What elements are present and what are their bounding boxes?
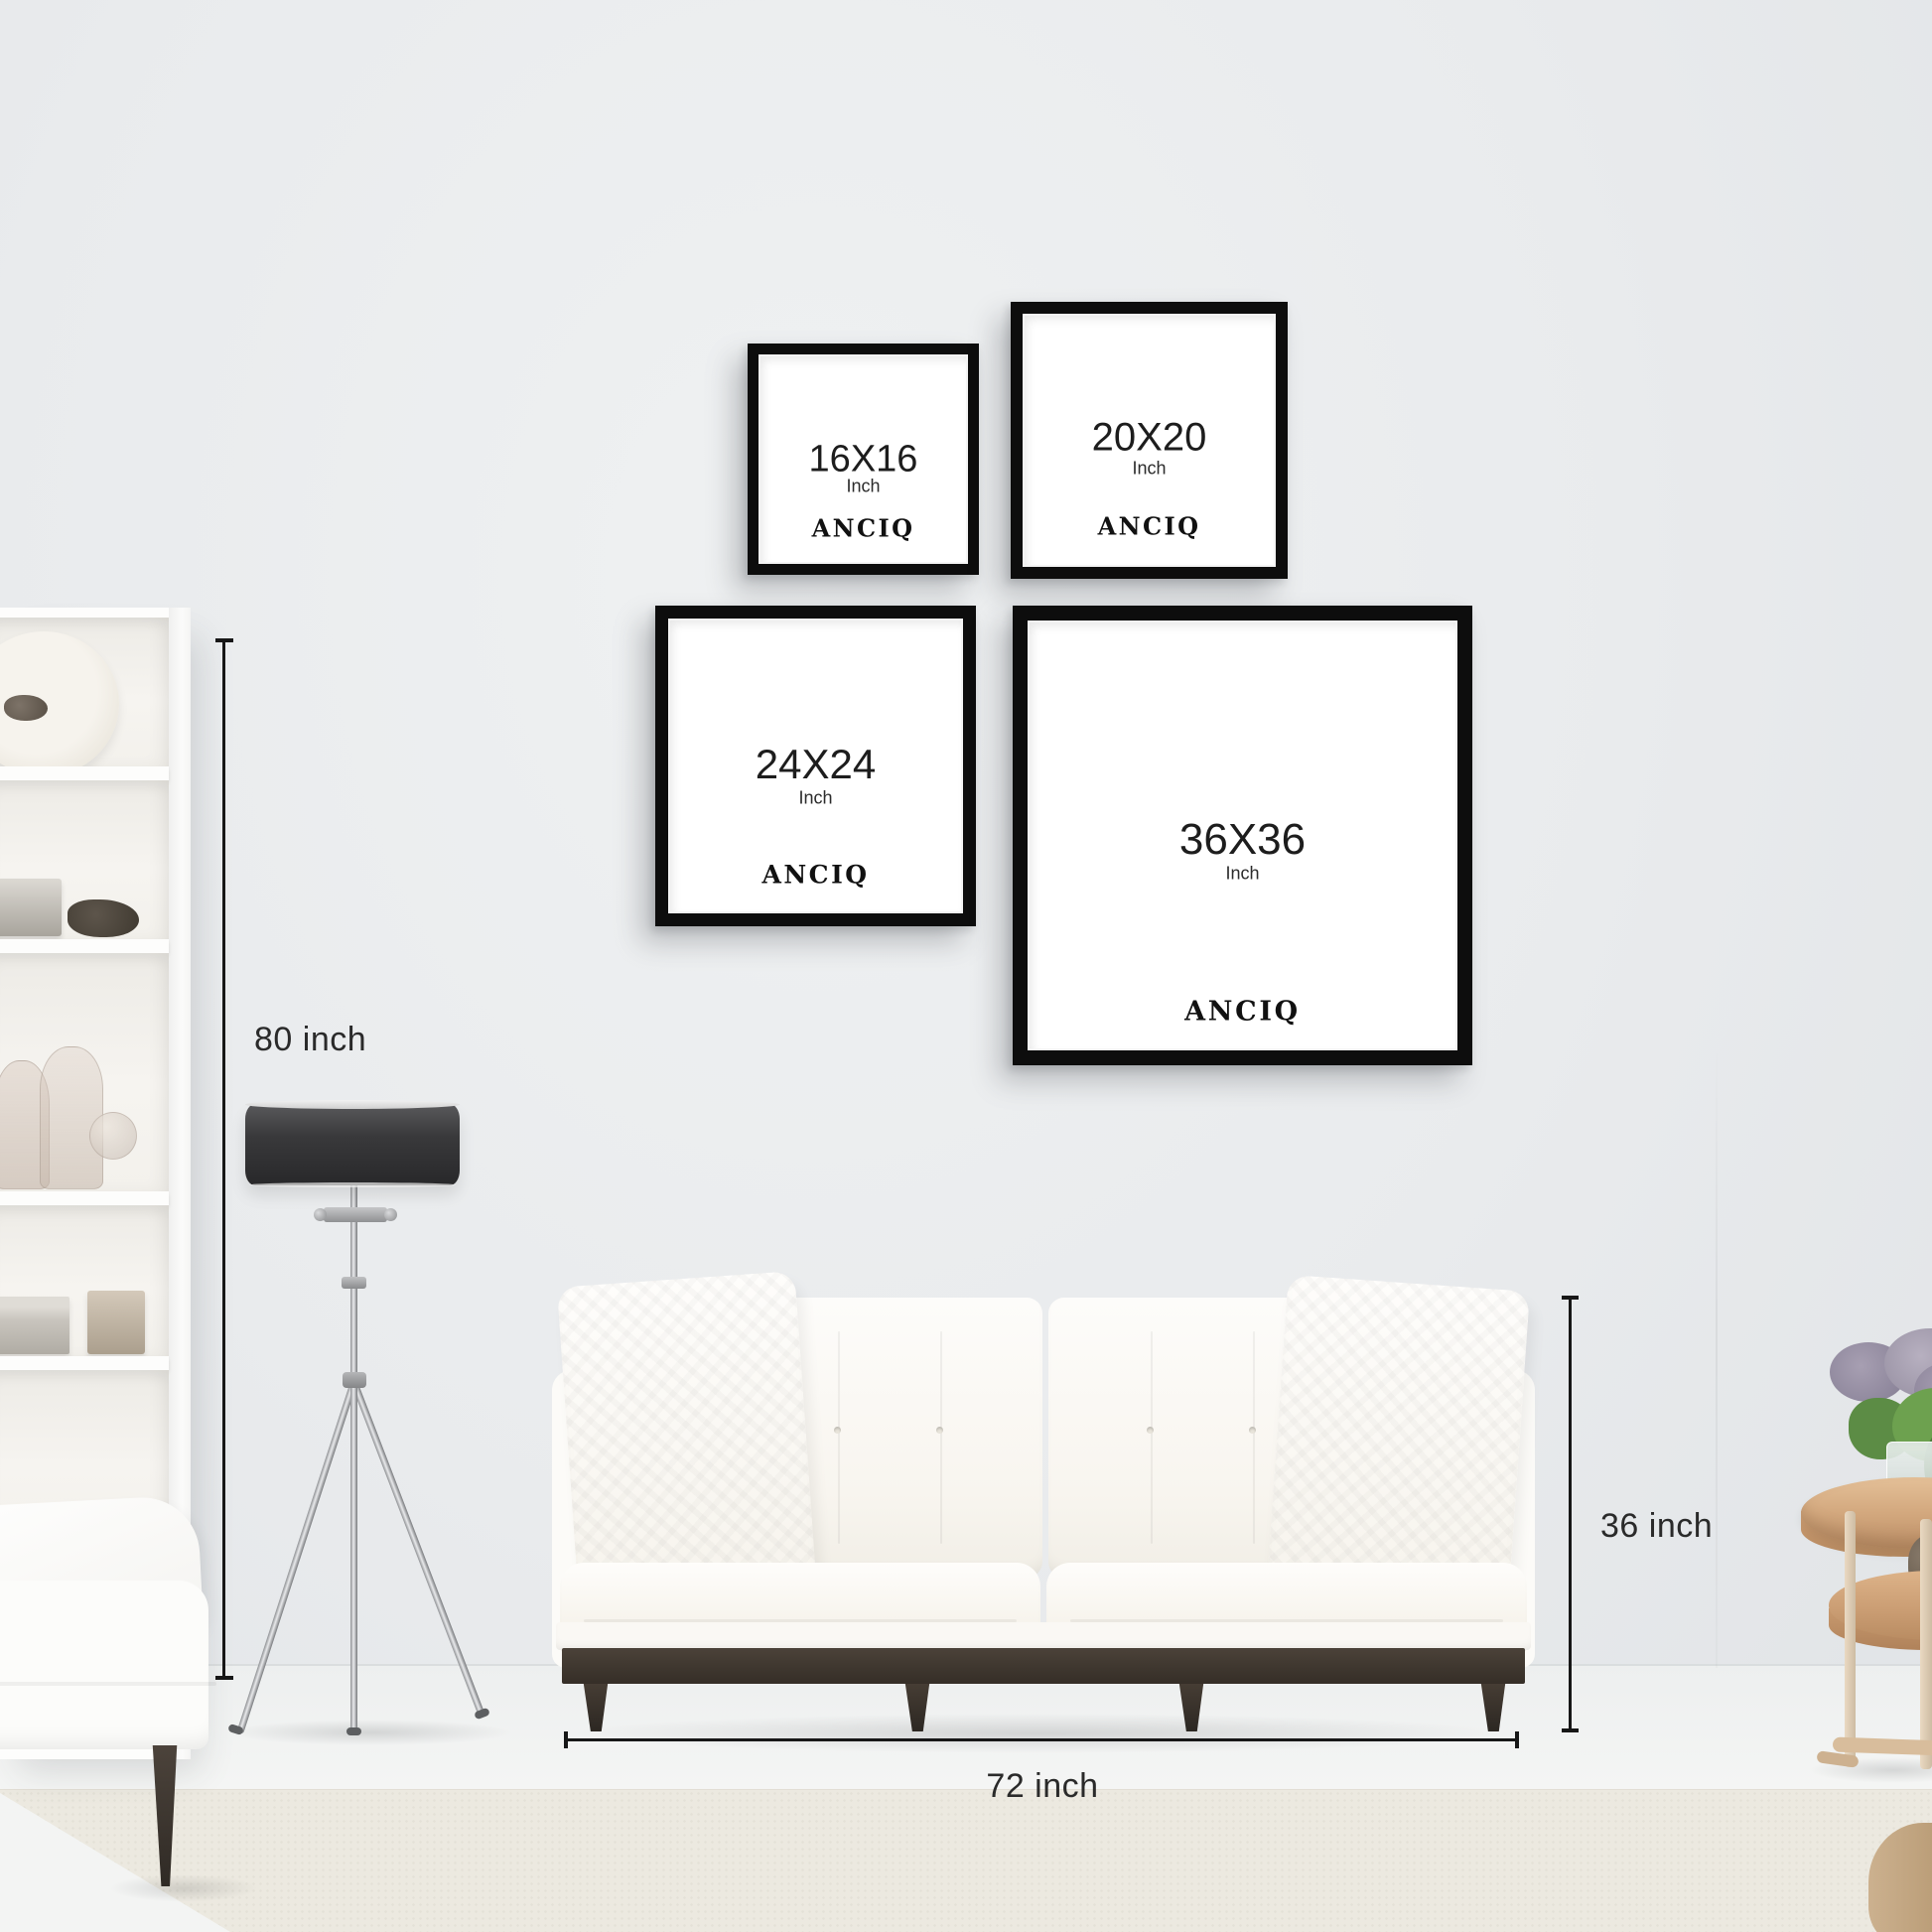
frame-unit-label: Inch <box>759 476 968 496</box>
throw-pillow-left <box>557 1271 817 1612</box>
sofa-wood-rail <box>562 1648 1525 1684</box>
brand-logo: ANCIQ <box>668 861 963 890</box>
decor-metal-box <box>0 1297 69 1354</box>
brand-logo: ANCIQ <box>1023 512 1276 541</box>
sofa-front-apron <box>556 1622 1531 1650</box>
stool-leg <box>1920 1519 1932 1769</box>
frame-20x20: 20X20 Inch ANCIQ <box>1011 302 1288 579</box>
shelf-board <box>0 766 169 780</box>
frame-unit-label: Inch <box>668 788 963 809</box>
tuft-crease <box>1253 1331 1255 1544</box>
lamp-knob <box>314 1208 327 1221</box>
dimension-line-sofa-width <box>564 1738 1519 1741</box>
brand-logo: ANCIQ <box>759 514 968 543</box>
sofa <box>552 1273 1535 1739</box>
dimension-cap-right <box>1515 1731 1519 1748</box>
sofa-height-label: 36 inch <box>1600 1507 1713 1546</box>
frame-unit-label: Inch <box>1028 864 1457 885</box>
dimension-cap-left <box>564 1731 568 1748</box>
decor-plate <box>0 631 119 776</box>
decor-glass-orb <box>89 1112 137 1160</box>
frame-36x36: 36X36 Inch ANCIQ <box>1013 606 1472 1065</box>
armchair-seam <box>0 1682 216 1686</box>
frame-24x24-mat: 24X24 Inch ANCIQ <box>668 619 963 913</box>
frame-size-label: 20X20 <box>1023 415 1276 460</box>
dimension-line-wall-height <box>222 638 225 1680</box>
tuft-button <box>1249 1427 1256 1434</box>
frame-unit-label: Inch <box>1023 458 1276 479</box>
tuft-crease <box>1151 1331 1153 1544</box>
decor-trinkets <box>68 899 139 937</box>
shelf-board <box>0 1356 169 1370</box>
wall-corner-shading <box>1716 1042 1718 1668</box>
sofa-leg <box>580 1684 612 1731</box>
frame-16x16-mat: 16X16 Inch ANCIQ <box>759 354 968 564</box>
lamp-clamp <box>324 1207 387 1222</box>
sofa-width-label: 72 inch <box>973 1767 1112 1806</box>
frame-24x24: 24X24 Inch ANCIQ <box>655 606 976 926</box>
stool-leg <box>1845 1511 1856 1767</box>
dimension-cap-top <box>1562 1296 1579 1300</box>
dimension-cap-top <box>215 638 233 642</box>
tuft-button <box>1147 1427 1154 1434</box>
bookshelf-cell-1 <box>0 618 169 766</box>
shelf-board <box>0 939 169 953</box>
lamp-knob <box>384 1208 397 1221</box>
lamp-shade-rim <box>245 1100 460 1109</box>
lamp-shadow <box>226 1720 514 1745</box>
lamp-shade <box>245 1104 460 1185</box>
dimension-cap-bottom <box>1562 1728 1579 1732</box>
tuft-button <box>936 1427 943 1434</box>
tuft-crease <box>838 1331 840 1544</box>
armchair-seat <box>0 1581 208 1749</box>
sofa-leg <box>901 1684 933 1731</box>
frame-36x36-mat: 36X36 Inch ANCIQ <box>1028 621 1457 1050</box>
lamp-shade-rim-bottom <box>249 1182 456 1187</box>
lamp-tripod-hub <box>343 1372 366 1388</box>
frame-size-label: 36X36 <box>1028 815 1457 865</box>
living-room-frame-mockup: 16X16 Inch ANCIQ 20X20 Inch ANCIQ 24X24 … <box>0 0 1932 1932</box>
decor-silver-box <box>0 879 62 936</box>
chair-shadow <box>109 1874 258 1902</box>
tuft-crease <box>940 1331 942 1544</box>
sofa-leg <box>1477 1684 1509 1731</box>
lamp-tripod-leg-center <box>350 1382 357 1731</box>
frame-size-label: 16X16 <box>759 438 968 481</box>
dimension-line-sofa-height <box>1569 1296 1572 1732</box>
brand-logo: ANCIQ <box>1028 997 1457 1028</box>
frame-size-label: 24X24 <box>668 741 963 788</box>
wall-height-label: 80 inch <box>254 1021 366 1059</box>
shelf-board <box>0 1191 169 1205</box>
plate-ornament <box>4 695 48 721</box>
tuft-button <box>834 1427 841 1434</box>
frame-20x20-mat: 20X20 Inch ANCIQ <box>1023 314 1276 567</box>
decor-stone-cube <box>87 1291 145 1354</box>
decor-glass-bottle <box>40 1046 103 1189</box>
lamp-foot <box>346 1727 361 1735</box>
lamp-collar <box>342 1277 366 1289</box>
carpet <box>0 1789 1932 1932</box>
dimension-cap-bottom <box>215 1676 233 1680</box>
frame-16x16: 16X16 Inch ANCIQ <box>748 344 979 575</box>
sofa-leg <box>1175 1684 1207 1731</box>
